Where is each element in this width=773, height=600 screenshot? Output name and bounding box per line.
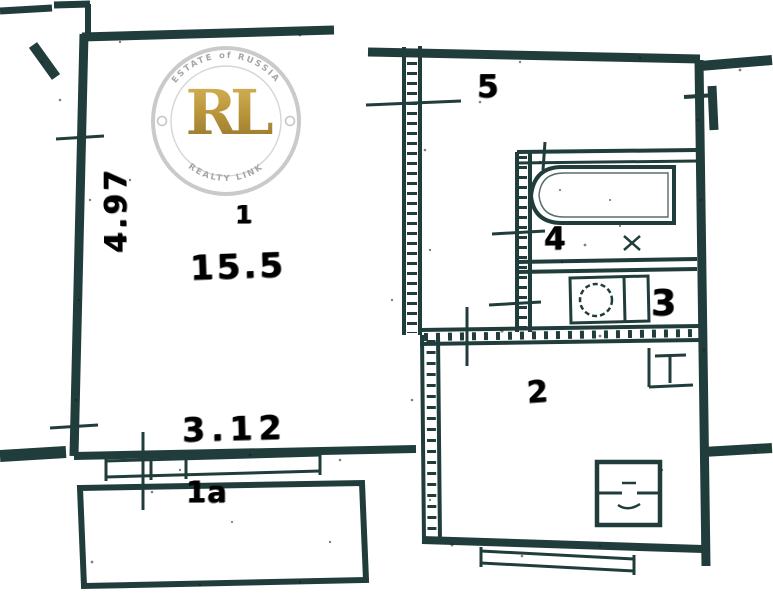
floor-plan-page: ESTATE of RUSSIA REALTY LINK RL 4.97 15.… bbox=[0, 0, 773, 600]
balcony-label: 1a bbox=[186, 478, 228, 507]
watermark-monogram: RL bbox=[147, 82, 305, 144]
watermark-seal: ESTATE of RUSSIA REALTY LINK RL bbox=[147, 42, 305, 200]
bathroom-label: 4 bbox=[544, 224, 566, 255]
watermark-bottom-arc-label: REALTY LINK bbox=[186, 162, 266, 184]
stove-icon bbox=[597, 462, 660, 525]
hallway-kitchen-wall bbox=[420, 326, 700, 344]
interior-vertical-wall bbox=[404, 46, 440, 542]
kitchen-bottom-wall bbox=[422, 540, 703, 575]
toilet-label: 3 bbox=[651, 286, 676, 322]
vent-duct-icon bbox=[649, 348, 693, 387]
kitchen-label: 2 bbox=[526, 377, 549, 408]
toilet-icon bbox=[570, 276, 649, 323]
room1-depth-dimension: 4.97 bbox=[102, 155, 132, 265]
room1-width-dimension: 3.12 bbox=[182, 411, 288, 447]
room1-area-label: 15.5 bbox=[189, 248, 286, 285]
room1-number-label: 1 bbox=[235, 202, 252, 227]
watermark-bottom-arc-text: REALTY LINK bbox=[186, 162, 266, 184]
hallway-label: 5 bbox=[477, 72, 499, 103]
